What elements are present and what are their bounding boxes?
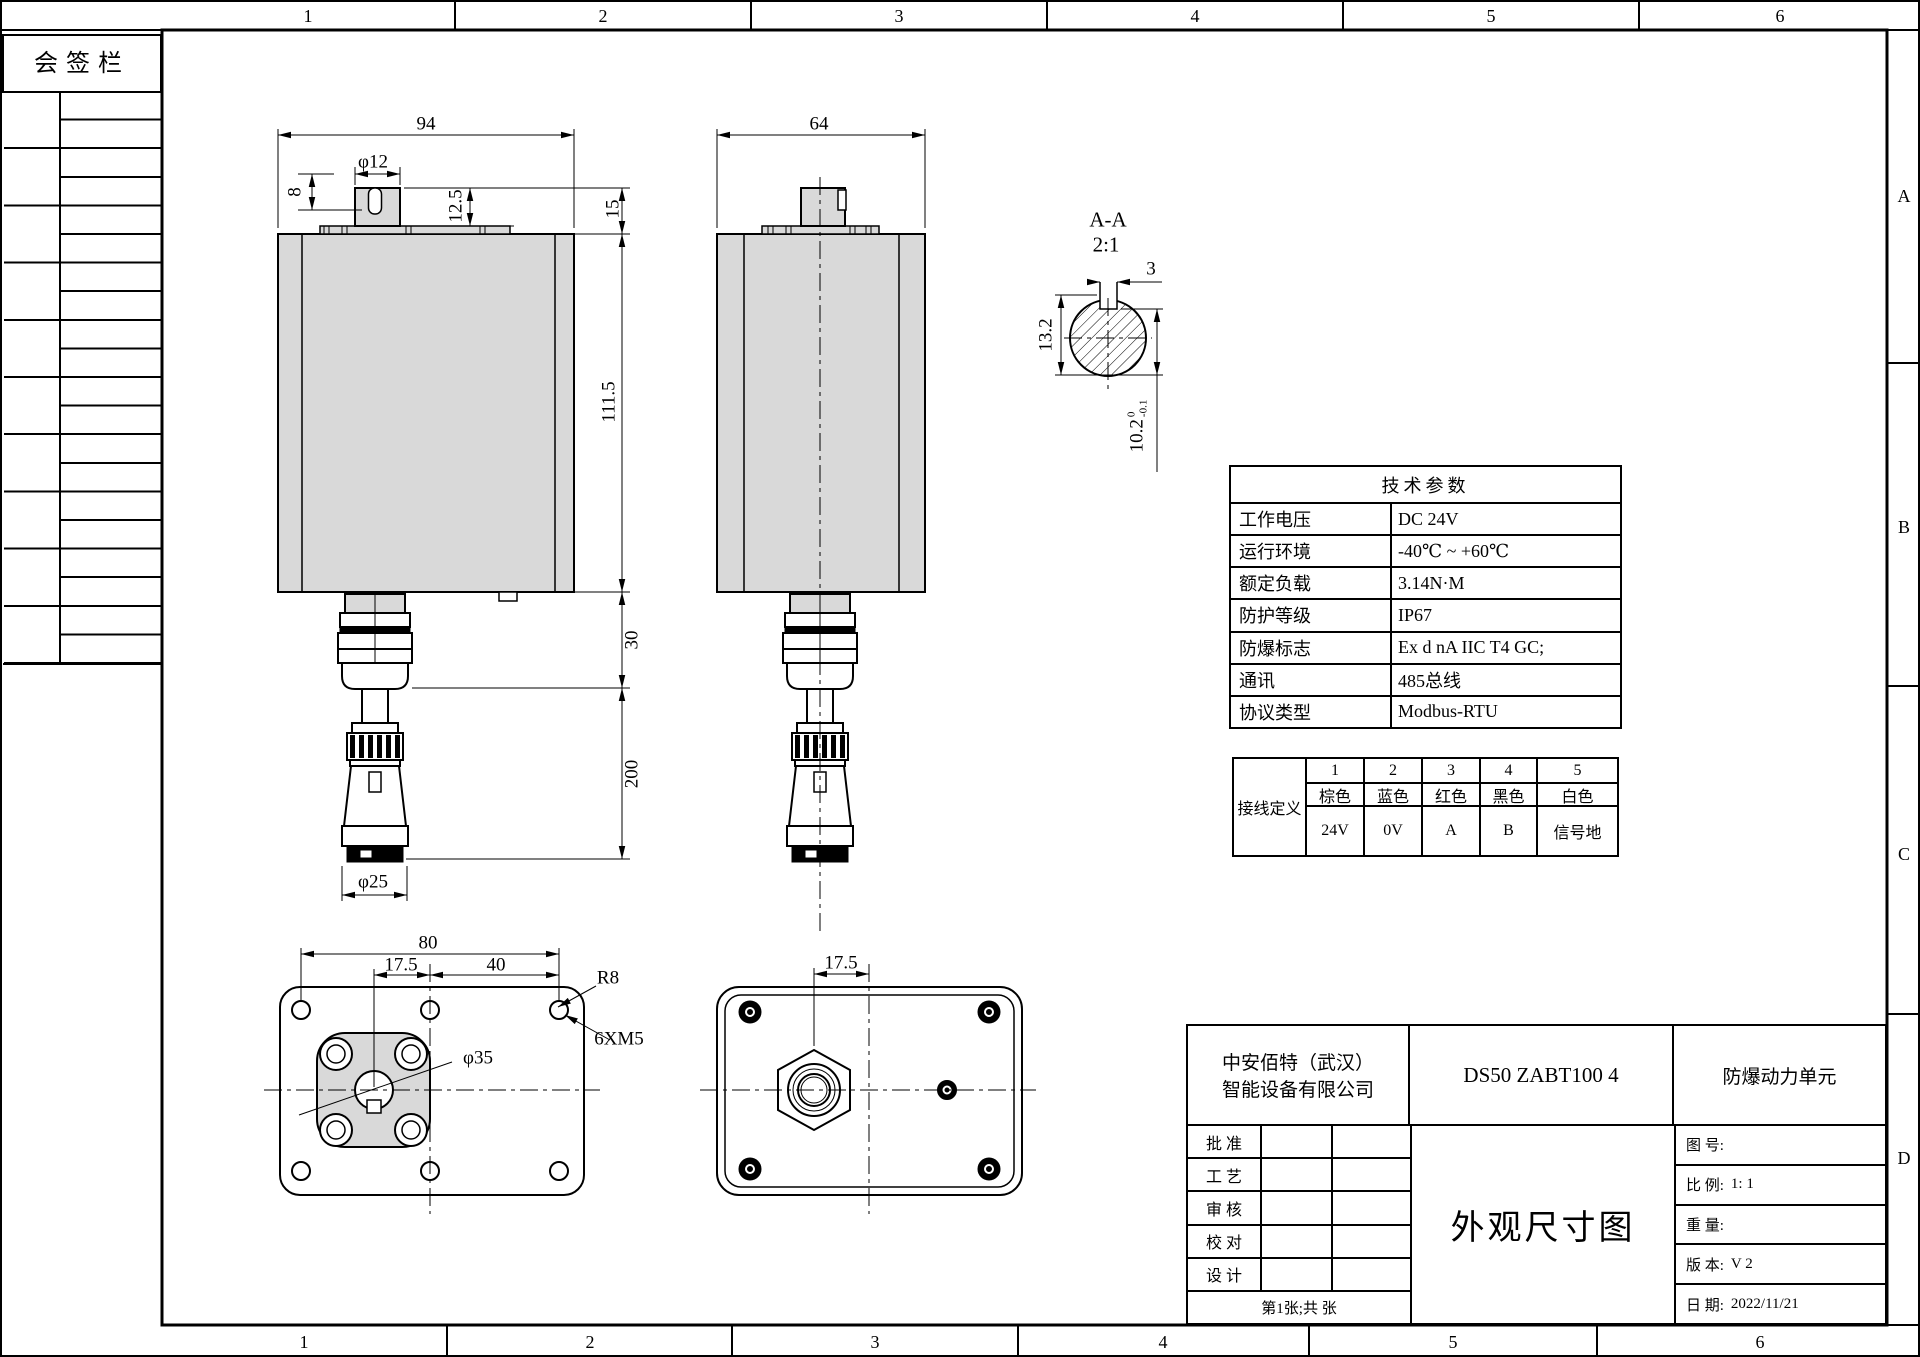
- tech-label: 通讯: [1231, 665, 1392, 695]
- table-row: 通讯485总线: [1231, 665, 1620, 697]
- ruler-top-1: 1: [304, 7, 313, 25]
- dim-front-key-depth: 12.5: [447, 189, 466, 222]
- wiring-signal: 0V: [1365, 807, 1423, 855]
- wiring-pin: 5: [1538, 759, 1617, 784]
- field-label: 比 例:: [1686, 1174, 1724, 1195]
- table-row: 协议类型Modbus-RTU: [1231, 697, 1620, 727]
- table-row: 防护等级IP67: [1231, 600, 1620, 632]
- dim-front-shaft-dia: φ12: [358, 153, 388, 172]
- field-row: 图 号:: [1676, 1126, 1885, 1166]
- table-row: 工 艺: [1188, 1159, 1410, 1192]
- table-row: 工作电压DC 24V: [1231, 504, 1620, 536]
- approval-label: 审 核: [1188, 1192, 1262, 1223]
- wiring-table: 接线定义 1 2 3 4 5 棕色 蓝色 红色 黑色 白色 24V 0V A B…: [1232, 757, 1619, 857]
- approval-blank-cell: [1333, 1226, 1410, 1257]
- approval-label: 批 准: [1188, 1126, 1262, 1157]
- wiring-table-header: 接线定义: [1234, 759, 1307, 855]
- table-row: 批 准: [1188, 1126, 1410, 1159]
- title-block-top-row: 中安佰特（武汉） 智能设备有限公司 DS50 ZABT100 4 防爆动力单元: [1188, 1026, 1885, 1126]
- table-row: 校 对: [1188, 1226, 1410, 1259]
- table-row: 运行环境-40℃ ~ +60℃: [1231, 536, 1620, 568]
- dim-section-key-width: 3: [1146, 260, 1156, 279]
- wiring-pin: 2: [1365, 759, 1423, 784]
- dim-front-width: 94: [417, 115, 436, 134]
- tech-value: IP67: [1392, 600, 1620, 630]
- field-value: 2022/11/21: [1731, 1296, 1799, 1313]
- ruler-top-3: 3: [895, 7, 904, 25]
- ruler-bottom-2: 2: [586, 1333, 595, 1351]
- company-name: 中安佰特（武汉） 智能设备有限公司: [1188, 1026, 1410, 1124]
- dim-section-tolerance: 0-0.1: [1126, 400, 1149, 417]
- approval-blank-cell: [1262, 1159, 1333, 1190]
- wiring-color: 白色: [1538, 784, 1617, 807]
- dim-section-across-flat: 10.20-0.1: [1126, 400, 1149, 453]
- dim-front-key-length: 8: [286, 187, 305, 197]
- tech-value: Ex d nA IIC T4 GC;: [1392, 633, 1620, 663]
- field-label: 版 本:: [1686, 1254, 1724, 1275]
- dim-bvl-thread-callout: 6XM5: [594, 1030, 644, 1049]
- ruler-right-a: A: [1898, 187, 1911, 205]
- ruler-bottom-1: 1: [300, 1333, 309, 1351]
- section-scale: 2:1: [1093, 235, 1120, 256]
- wiring-pin: 3: [1423, 759, 1481, 784]
- wiring-signal: B: [1481, 807, 1538, 855]
- dim-section-shaft-dia: 13.2: [1037, 318, 1056, 351]
- model-number: DS50 ZABT100 4: [1410, 1026, 1674, 1124]
- tech-value: DC 24V: [1392, 504, 1620, 534]
- tech-label: 防护等级: [1231, 600, 1392, 630]
- signature-grid-right: [61, 92, 162, 664]
- approval-table: 批 准 工 艺 审 核 校 对 设 计 第1张;共 张: [1188, 1126, 1412, 1323]
- drawing-sheet: 会签栏 1 2 3 4 5 6 1 2 3 4 5 6 A B C D 94 φ…: [0, 0, 1920, 1357]
- signature-grid-left: [4, 92, 61, 664]
- dim-side-width: 64: [810, 115, 829, 134]
- dim-front-body-height: 111.5: [600, 381, 619, 422]
- ruler-top-5: 5: [1487, 7, 1496, 25]
- dim-bvl-flange-dia: φ35: [463, 1049, 493, 1068]
- tech-table-title: 技术参数: [1231, 467, 1620, 504]
- approval-blank-cell: [1333, 1159, 1410, 1190]
- ruler-bottom-6: 6: [1756, 1333, 1765, 1351]
- tech-value: -40℃ ~ +60℃: [1392, 536, 1620, 566]
- approval-blank-cell: [1333, 1259, 1410, 1290]
- field-row: 版 本:V 2: [1676, 1245, 1885, 1285]
- approval-blank-cell: [1333, 1126, 1410, 1157]
- ruler-right-b: B: [1898, 518, 1910, 536]
- tech-label: 工作电压: [1231, 504, 1392, 534]
- dim-bvl-hole-span: 80: [419, 934, 438, 953]
- table-row: 审 核: [1188, 1192, 1410, 1225]
- ruler-top-2: 2: [599, 7, 608, 25]
- wiring-color: 棕色: [1307, 784, 1365, 807]
- tech-parameters-table: 技术参数 工作电压DC 24V 运行环境-40℃ ~ +60℃ 额定负载3.14…: [1229, 465, 1622, 729]
- approval-blank-cell: [1262, 1259, 1333, 1290]
- dim-bvl-center-offset: 17.5: [384, 956, 417, 975]
- drawing-fields: 图 号: 比 例:1: 1 重 量: 版 本:V 2 日 期:2022/11/2…: [1676, 1126, 1885, 1323]
- ruler-bottom-3: 3: [871, 1333, 880, 1351]
- wiring-color: 红色: [1423, 784, 1481, 807]
- front-view: [278, 129, 630, 901]
- dim-bvl-corner-radius: R8: [597, 969, 619, 988]
- wiring-signal: A: [1423, 807, 1481, 855]
- section-label: A-A: [1089, 210, 1126, 231]
- tech-value: 485总线: [1392, 665, 1620, 695]
- field-label: 图 号:: [1686, 1134, 1724, 1155]
- ruler-right-c: C: [1898, 845, 1910, 863]
- signature-panel-title: 会签栏: [34, 52, 130, 76]
- dim-section-across-flat-value: 10.2: [1126, 419, 1147, 452]
- field-label: 日 期:: [1686, 1294, 1724, 1315]
- tech-value: Modbus-RTU: [1392, 697, 1620, 727]
- ruler-top-6: 6: [1776, 7, 1785, 25]
- approval-blank-cell: [1262, 1192, 1333, 1223]
- wiring-color: 蓝色: [1365, 784, 1423, 807]
- tech-label: 协议类型: [1231, 697, 1392, 727]
- approval-blank-cell: [1262, 1226, 1333, 1257]
- wiring-signal: 24V: [1307, 807, 1365, 855]
- tech-label: 运行环境: [1231, 536, 1392, 566]
- title-block: 中安佰特（武汉） 智能设备有限公司 DS50 ZABT100 4 防爆动力单元 …: [1186, 1024, 1887, 1325]
- drawing-title: 外观尺寸图: [1412, 1126, 1676, 1323]
- dim-front-boss-height: 15: [604, 200, 623, 219]
- table-row: 额定负载3.14N·M: [1231, 568, 1620, 600]
- wiring-pin: 4: [1481, 759, 1538, 784]
- dim-front-cable-length: 200: [623, 760, 642, 789]
- dim-bvl-hole-pitch: 40: [487, 956, 506, 975]
- wiring-pin: 1: [1307, 759, 1365, 784]
- field-row: 重 量:: [1676, 1206, 1885, 1246]
- approval-label: 设 计: [1188, 1259, 1262, 1290]
- ruler-bottom-5: 5: [1449, 1333, 1458, 1351]
- tolerance-upper: 0: [1126, 400, 1138, 417]
- sheet-note: 第1张;共 张: [1188, 1292, 1410, 1323]
- wiring-color: 黑色: [1481, 784, 1538, 807]
- field-row: 日 期:2022/11/21: [1676, 1285, 1885, 1323]
- ruler-top-4: 4: [1191, 7, 1200, 25]
- tolerance-lower: -0.1: [1138, 400, 1150, 417]
- ruler-right-d: D: [1898, 1149, 1911, 1167]
- field-value: 1: 1: [1731, 1176, 1754, 1193]
- product-name: 防爆动力单元: [1674, 1026, 1885, 1124]
- field-label: 重 量:: [1686, 1214, 1724, 1235]
- title-block-body: 批 准 工 艺 审 核 校 对 设 计 第1张;共 张 外观尺寸图 图 号: 比…: [1188, 1126, 1885, 1323]
- bottom-view-left: [264, 948, 610, 1214]
- approval-blank-cell: [1262, 1126, 1333, 1157]
- table-row: 防爆标志Ex d nA IIC T4 GC;: [1231, 633, 1620, 665]
- approval-blank-cell: [1333, 1192, 1410, 1223]
- dim-front-connector-dia: φ25: [358, 873, 388, 892]
- bottom-view-right: [700, 964, 1036, 1214]
- approval-label: 校 对: [1188, 1226, 1262, 1257]
- table-row: 设 计: [1188, 1259, 1410, 1292]
- tech-value: 3.14N·M: [1392, 568, 1620, 598]
- wiring-grid: 1 2 3 4 5 棕色 蓝色 红色 黑色 白色 24V 0V A B 信号地: [1307, 759, 1617, 855]
- ruler-bottom-4: 4: [1159, 1333, 1168, 1351]
- wiring-signal: 信号地: [1538, 807, 1617, 855]
- dim-bvr-center-offset: 17.5: [824, 954, 857, 973]
- field-row: 比 例:1: 1: [1676, 1166, 1885, 1206]
- side-view: [717, 129, 925, 932]
- tech-label: 额定负载: [1231, 568, 1392, 598]
- tech-label: 防爆标志: [1231, 633, 1392, 663]
- dim-front-gland-length: 30: [623, 631, 642, 650]
- approval-label: 工 艺: [1188, 1159, 1262, 1190]
- field-value: V 2: [1731, 1256, 1753, 1273]
